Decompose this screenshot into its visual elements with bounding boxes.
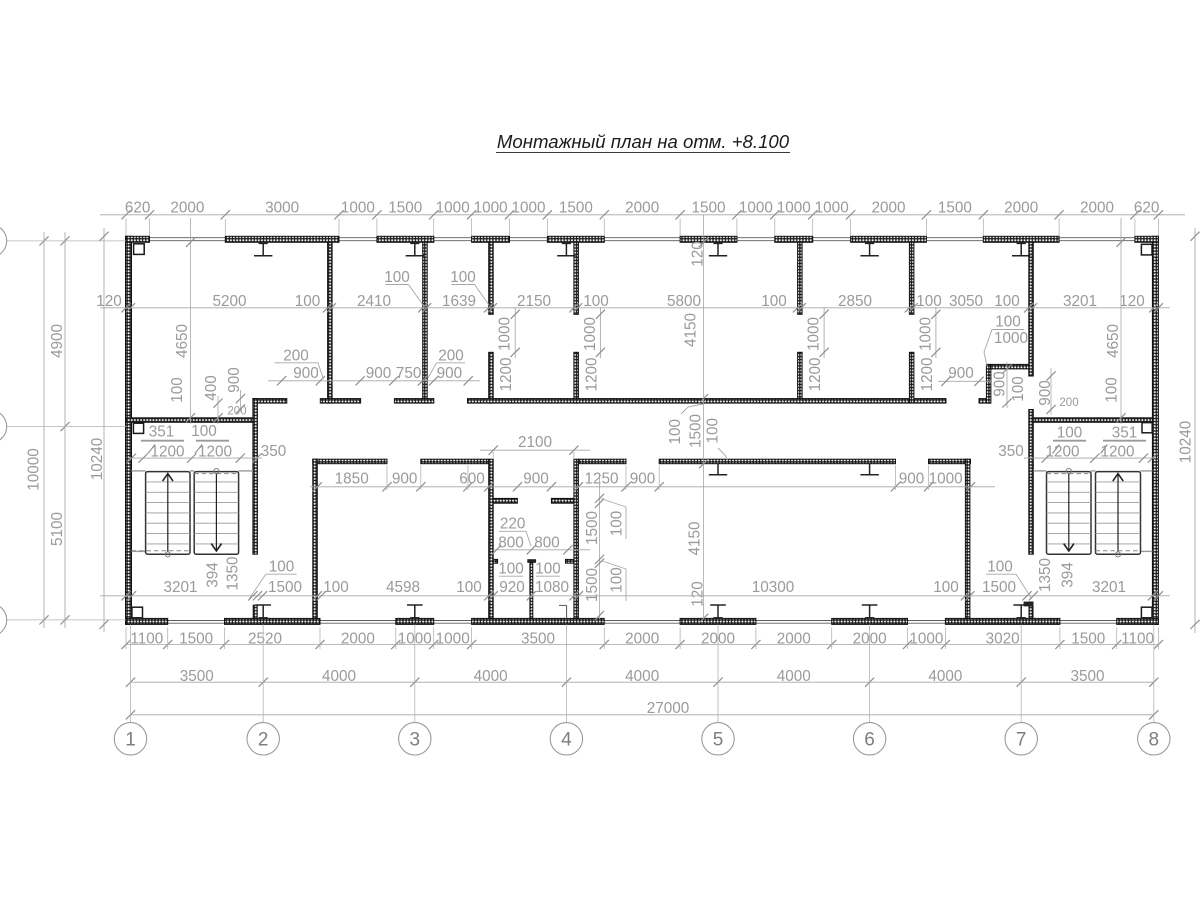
svg-text:100: 100 — [761, 293, 787, 310]
svg-text:3201: 3201 — [1063, 293, 1097, 310]
svg-text:1500: 1500 — [559, 199, 593, 216]
svg-text:1000: 1000 — [909, 630, 943, 647]
svg-text:2000: 2000 — [871, 199, 905, 216]
svg-text:120: 120 — [690, 581, 707, 607]
svg-text:10240: 10240 — [89, 438, 106, 481]
svg-text:120: 120 — [1119, 293, 1145, 310]
svg-text:1000: 1000 — [994, 330, 1028, 347]
svg-text:3000: 3000 — [265, 199, 299, 216]
svg-text:1000: 1000 — [917, 317, 934, 351]
svg-text:900: 900 — [437, 365, 463, 382]
svg-text:1000: 1000 — [436, 630, 470, 647]
svg-text:220: 220 — [500, 515, 526, 532]
svg-text:3020: 3020 — [986, 630, 1020, 647]
svg-text:900: 900 — [293, 365, 319, 382]
svg-text:400: 400 — [203, 375, 220, 401]
svg-text:2410: 2410 — [357, 293, 391, 310]
svg-text:1000: 1000 — [474, 199, 508, 216]
svg-text:2000: 2000 — [777, 630, 811, 647]
svg-text:1500: 1500 — [938, 199, 972, 216]
svg-text:10300: 10300 — [752, 579, 795, 596]
svg-text:100: 100 — [295, 293, 321, 310]
svg-text:394: 394 — [205, 562, 222, 588]
svg-text:100: 100 — [384, 269, 410, 286]
svg-text:2000: 2000 — [625, 199, 659, 216]
svg-text:4000: 4000 — [474, 668, 508, 685]
svg-text:1000: 1000 — [497, 317, 514, 351]
svg-text:100: 100 — [535, 560, 561, 577]
svg-text:1500: 1500 — [268, 579, 302, 596]
svg-text:100: 100 — [1104, 377, 1121, 403]
svg-text:620: 620 — [1134, 199, 1160, 216]
svg-text:900: 900 — [899, 471, 925, 488]
svg-text:2520: 2520 — [248, 630, 282, 647]
svg-text:1080: 1080 — [535, 579, 569, 596]
svg-text:3050: 3050 — [949, 293, 983, 310]
svg-text:4900: 4900 — [49, 324, 66, 358]
svg-text:Монтажный план на отм. +8.100: Монтажный план на отм. +8.100 — [497, 131, 790, 152]
svg-text:350: 350 — [261, 443, 287, 460]
svg-text:100: 100 — [1057, 424, 1083, 441]
svg-text:2000: 2000 — [170, 199, 204, 216]
svg-text:2000: 2000 — [625, 630, 659, 647]
svg-text:3: 3 — [410, 730, 421, 751]
svg-text:351: 351 — [1112, 424, 1138, 441]
svg-text:200: 200 — [227, 406, 246, 418]
svg-text:100: 100 — [933, 579, 959, 596]
svg-text:100: 100 — [705, 418, 722, 444]
svg-text:100: 100 — [987, 559, 1013, 576]
svg-text:900: 900 — [948, 365, 974, 382]
svg-text:100: 100 — [609, 567, 626, 593]
svg-text:100: 100 — [450, 269, 476, 286]
svg-text:900: 900 — [630, 471, 656, 488]
svg-text:351: 351 — [149, 424, 175, 441]
svg-text:800: 800 — [534, 534, 560, 551]
svg-text:1250: 1250 — [584, 471, 618, 488]
svg-text:100: 100 — [1010, 376, 1027, 402]
svg-text:100: 100 — [667, 419, 684, 445]
svg-text:1200: 1200 — [198, 444, 232, 461]
svg-text:200: 200 — [283, 347, 309, 364]
svg-text:2000: 2000 — [1080, 199, 1114, 216]
svg-text:1500: 1500 — [388, 199, 422, 216]
svg-text:1000: 1000 — [777, 199, 811, 216]
svg-text:394: 394 — [1060, 562, 1077, 588]
svg-text:1500: 1500 — [691, 199, 725, 216]
svg-text:100: 100 — [169, 377, 186, 403]
svg-text:600: 600 — [459, 471, 485, 488]
svg-text:4150: 4150 — [683, 313, 700, 347]
svg-text:1500: 1500 — [584, 511, 601, 545]
svg-text:5: 5 — [713, 730, 724, 751]
svg-text:3500: 3500 — [1070, 668, 1104, 685]
svg-text:620: 620 — [125, 199, 151, 216]
svg-text:1: 1 — [125, 730, 136, 751]
svg-text:10240: 10240 — [1178, 421, 1195, 464]
svg-text:200: 200 — [1059, 397, 1078, 409]
svg-text:800: 800 — [498, 534, 524, 551]
svg-text:3500: 3500 — [521, 630, 555, 647]
svg-text:1500: 1500 — [179, 630, 213, 647]
svg-text:100: 100 — [609, 511, 626, 537]
svg-text:3201: 3201 — [1092, 579, 1126, 596]
svg-text:2000: 2000 — [1004, 199, 1038, 216]
svg-text:4598: 4598 — [386, 579, 420, 596]
svg-text:1000: 1000 — [582, 317, 599, 351]
svg-text:900: 900 — [1037, 380, 1054, 406]
svg-text:100: 100 — [498, 560, 524, 577]
svg-text:350: 350 — [998, 443, 1024, 460]
svg-text:1200: 1200 — [583, 357, 600, 391]
svg-text:1500: 1500 — [1071, 630, 1105, 647]
svg-text:2000: 2000 — [341, 630, 375, 647]
svg-text:1000: 1000 — [436, 199, 470, 216]
svg-text:10000: 10000 — [26, 448, 43, 491]
svg-text:2150: 2150 — [517, 293, 551, 310]
svg-text:2850: 2850 — [838, 293, 872, 310]
svg-text:120: 120 — [96, 293, 122, 310]
svg-text:1200: 1200 — [498, 357, 515, 391]
svg-text:27000: 27000 — [647, 700, 690, 717]
svg-text:920: 920 — [499, 579, 525, 596]
svg-text:4000: 4000 — [928, 668, 962, 685]
svg-text:5800: 5800 — [667, 293, 701, 310]
svg-text:5200: 5200 — [212, 293, 246, 310]
svg-text:8: 8 — [1149, 730, 1160, 751]
svg-text:4000: 4000 — [322, 668, 356, 685]
svg-text:900: 900 — [523, 471, 549, 488]
svg-text:4650: 4650 — [174, 324, 191, 358]
svg-text:4150: 4150 — [687, 521, 704, 555]
svg-text:2100: 2100 — [518, 434, 552, 451]
svg-text:1100: 1100 — [130, 630, 163, 647]
svg-text:1500: 1500 — [982, 579, 1016, 596]
svg-text:3500: 3500 — [180, 668, 214, 685]
svg-text:1500: 1500 — [584, 568, 601, 602]
svg-text:1100: 1100 — [1121, 630, 1154, 647]
svg-text:750: 750 — [396, 365, 422, 382]
svg-text:100: 100 — [583, 293, 609, 310]
svg-text:1200: 1200 — [807, 357, 824, 391]
svg-text:1200: 1200 — [150, 444, 184, 461]
svg-text:120: 120 — [690, 241, 707, 267]
svg-text:5100: 5100 — [49, 512, 66, 546]
svg-text:2: 2 — [258, 730, 269, 751]
svg-text:100: 100 — [995, 314, 1021, 331]
svg-text:1350: 1350 — [225, 556, 242, 590]
svg-text:1500: 1500 — [688, 414, 705, 448]
svg-text:100: 100 — [191, 423, 217, 440]
svg-text:100: 100 — [916, 293, 942, 310]
svg-text:1639: 1639 — [442, 293, 476, 310]
svg-text:900: 900 — [226, 367, 243, 393]
svg-text:900: 900 — [366, 365, 392, 382]
svg-text:100: 100 — [323, 579, 349, 596]
svg-text:3201: 3201 — [163, 579, 197, 596]
svg-text:4000: 4000 — [625, 668, 659, 685]
svg-text:4: 4 — [561, 730, 572, 751]
svg-text:100: 100 — [456, 579, 482, 596]
svg-text:1000: 1000 — [815, 199, 849, 216]
svg-text:100: 100 — [269, 559, 295, 576]
svg-text:7: 7 — [1016, 730, 1027, 751]
svg-text:100: 100 — [994, 293, 1020, 310]
svg-text:1000: 1000 — [806, 317, 823, 351]
svg-text:6: 6 — [864, 730, 875, 751]
svg-text:4650: 4650 — [1105, 324, 1122, 358]
svg-text:1000: 1000 — [739, 199, 773, 216]
svg-text:1200: 1200 — [919, 357, 936, 391]
svg-text:900: 900 — [992, 371, 1009, 397]
svg-text:4000: 4000 — [777, 668, 811, 685]
svg-text:900: 900 — [392, 471, 418, 488]
svg-text:1000: 1000 — [511, 199, 545, 216]
svg-text:1850: 1850 — [335, 471, 369, 488]
svg-text:1200: 1200 — [1045, 444, 1079, 461]
svg-text:1000: 1000 — [341, 199, 375, 216]
svg-text:1000: 1000 — [929, 471, 963, 488]
svg-text:200: 200 — [438, 347, 464, 364]
svg-text:1350: 1350 — [1037, 558, 1054, 592]
